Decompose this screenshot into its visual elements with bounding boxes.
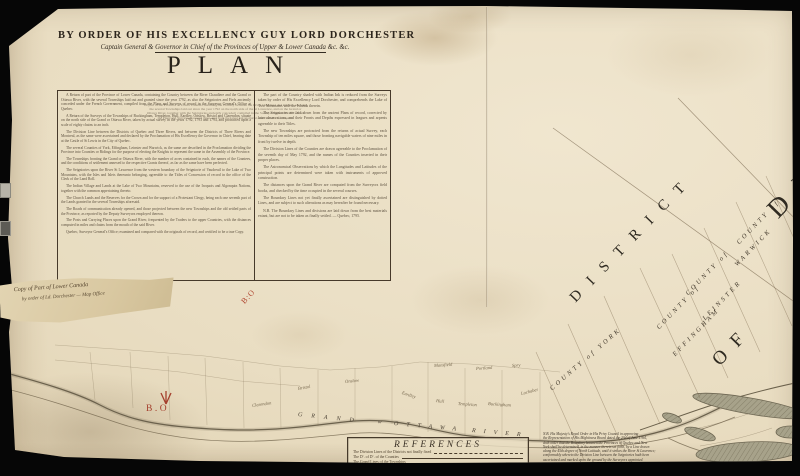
description-paragraph: The Posts and Carrying Places upon the G…	[61, 218, 251, 227]
district-of-label: OF	[708, 321, 757, 371]
description-left-column: A Return of part of the Province of Lowe…	[58, 91, 255, 280]
description-paragraph: A Return of the Surveys of the Townships…	[61, 114, 251, 128]
district-label: DISTRICT	[567, 171, 698, 306]
county-leinster-label: LEINSTER	[701, 279, 743, 322]
description-paragraph: The Seigniories are laid down from the a…	[258, 111, 387, 127]
description-paragraph: The Division Line between the Districts …	[61, 130, 251, 144]
edge-tab-light	[0, 183, 11, 198]
township-label: Spry	[512, 362, 521, 368]
township-label: Clarendon	[252, 400, 272, 408]
description-panel: A Return of part of the Province of Lowe…	[57, 90, 391, 281]
township-label: Templeton	[458, 401, 477, 407]
description-paragraph: The distances upon the Grand River are c…	[258, 183, 387, 194]
governor-line-prefix: Captain General &	[101, 44, 156, 51]
description-paragraph: The part of the Country shaded with Indi…	[258, 93, 387, 109]
township-label: Eardley	[401, 390, 416, 399]
map-sheet: DISTRICTDIOFCOUNTY of YORKCOUNTY ofEFFIN…	[0, 0, 800, 476]
description-paragraph: Quebec, Surveyor General's Office; exami…	[61, 230, 251, 235]
nb-note: N.B. His Majesty's Royal Order in His Pr…	[543, 432, 693, 462]
river-label: or	[378, 419, 383, 424]
board-of-ordnance-stamp: B.O	[144, 390, 189, 422]
river-label: OTTAWA	[394, 421, 465, 433]
description-paragraph: The Roads of communication already opene…	[61, 207, 251, 216]
township-label: Bristol	[298, 384, 311, 391]
township-label: Mansfield	[434, 362, 453, 368]
fold-seam	[486, 7, 488, 307]
edge-tab-dark	[0, 221, 11, 236]
governor-line-suffix: &c. &c.	[326, 44, 349, 51]
description-paragraph: The several Counties of York, Effingham,…	[61, 146, 251, 155]
map-title: PLAN	[58, 52, 392, 80]
description-paragraph: The new Townships are protracted from th…	[258, 129, 387, 145]
references-rows: The Division Lines of the Districts not …	[353, 450, 523, 465]
reference-row: The Grand Lines of the Townships	[353, 460, 523, 465]
township-label: Hull	[436, 398, 445, 404]
river-label: GRAND	[298, 412, 363, 425]
references-box: REFERENCES The Division Lines of the Dis…	[347, 437, 529, 471]
township-label: Onslow	[345, 378, 359, 384]
description-paragraph: The Indian Village and Lands at the Lake…	[61, 184, 251, 193]
township-label: Buckingham	[488, 401, 511, 408]
county-leinster-label: COUNTY of	[684, 250, 730, 297]
map-scan: DISTRICTDIOFCOUNTY of YORKCOUNTY ofEFFIN…	[0, 0, 800, 476]
references-title: REFERENCES	[353, 440, 523, 450]
description-right-column: The part of the Country shaded with Indi…	[255, 91, 390, 280]
township-label: Lochaber	[520, 387, 538, 396]
nb-note-line: ascertained and marked upon the ground b…	[543, 458, 693, 462]
county-warwick-label: WARWICK	[733, 227, 773, 268]
description-paragraph: N.B. The Boundary Lines and divisions ar…	[258, 209, 387, 220]
handwritten-note-line1: Copy of Part of Lower Canada	[14, 282, 89, 293]
description-paragraph: A Return of part of the Province of Lowe…	[61, 93, 251, 111]
order-line: BY ORDER OF HIS EXCELLENCY GUY LORD DORC…	[58, 30, 392, 41]
township-label: Portland	[476, 365, 493, 371]
governor-line: Captain General & Governor in Chief of t…	[58, 44, 392, 51]
description-paragraph: The Seigniories upon the River St Lawren…	[61, 168, 251, 182]
description-paragraph: The Church Lands and the Reserves for th…	[61, 196, 251, 205]
bo-stamp-text: B.O	[146, 404, 169, 414]
description-paragraph: The Boundary Lines not yet finally ascer…	[258, 196, 387, 207]
handwritten-note-line2: by order of Ld. Dorchester — Map Office	[22, 292, 105, 303]
description-paragraph: The Astronomical Observations by which t…	[258, 165, 387, 181]
description-paragraph: The Division Lines of the Counties are d…	[258, 147, 387, 163]
county-york-label: COUNTY of YORK	[549, 326, 623, 392]
title-block: BY ORDER OF HIS EXCELLENCY GUY LORD DORC…	[58, 30, 392, 80]
description-paragraph: The Townships fronting the Grand or Otta…	[61, 157, 251, 166]
